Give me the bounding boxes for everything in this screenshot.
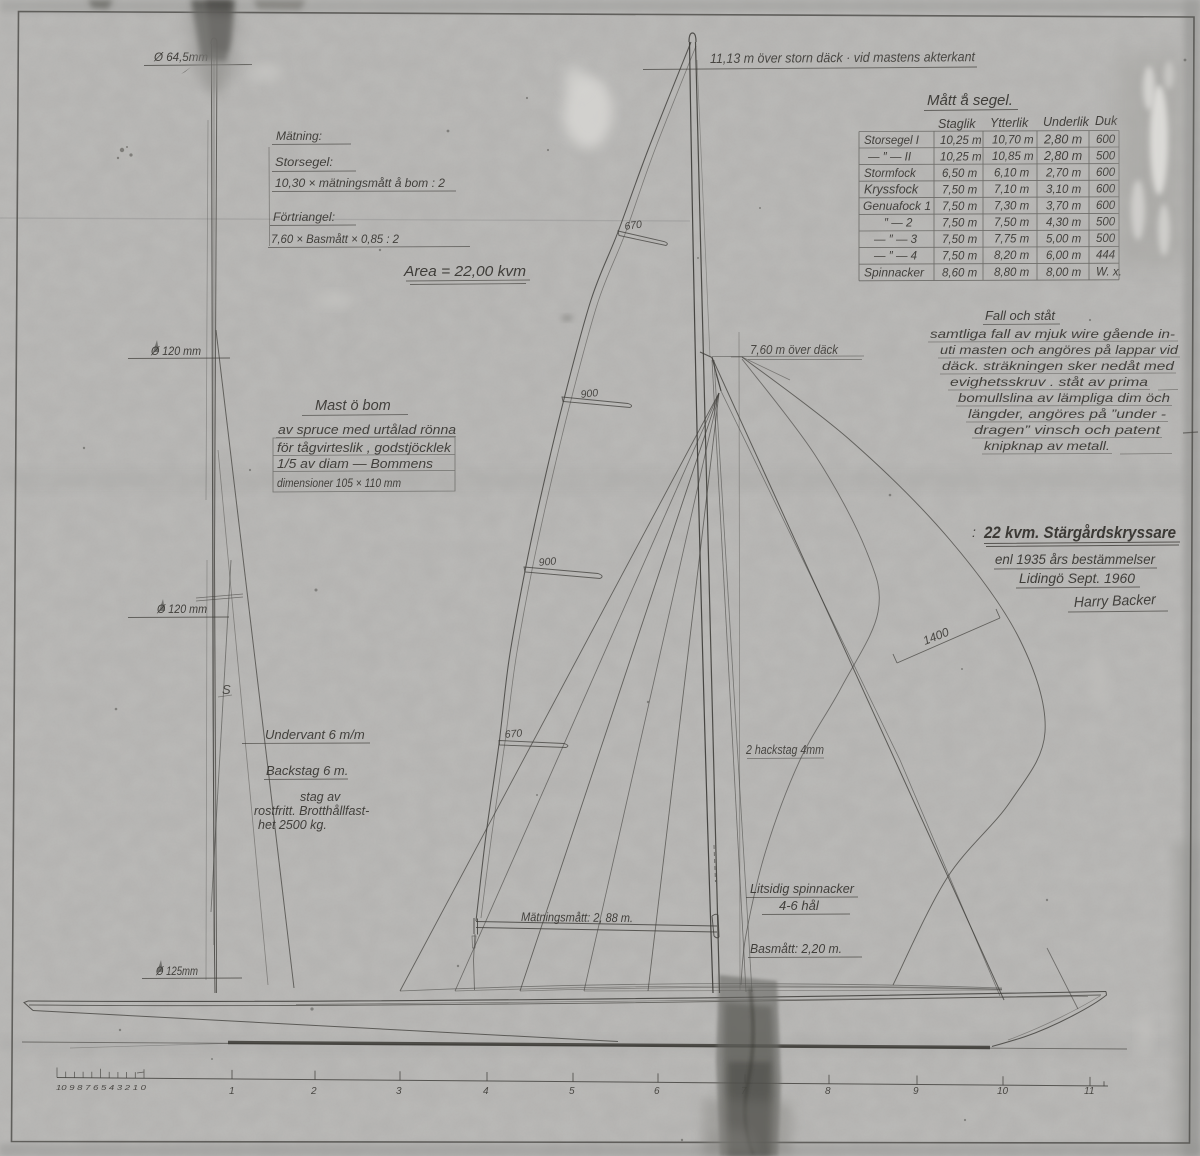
- svg-text:1: 1: [229, 1086, 235, 1097]
- svg-text:10,30 × mätningsmått å bom : 2: 10,30 × mätningsmått å bom : 2: [275, 176, 445, 190]
- svg-text:600: 600: [1096, 184, 1116, 196]
- svg-text:enl 1935 års bestämmelser: enl 1935 års bestämmelser: [995, 551, 1156, 567]
- svg-text:dragen” vinsch och patent: dragen” vinsch och patent: [974, 423, 1161, 437]
- svg-text:2,70 m: 2,70 m: [1045, 168, 1082, 180]
- svg-text:Backstag 6 m.: Backstag 6 m.: [266, 763, 348, 778]
- svg-text:rostfritt. Brotthållfast-: rostfritt. Brotthållfast-: [254, 804, 369, 818]
- svg-text:10,25 m: 10,25 m: [940, 135, 982, 147]
- svg-text:10,25 m: 10,25 m: [940, 152, 982, 164]
- svg-text:Litsidig spinnacker: Litsidig spinnacker: [750, 881, 855, 896]
- svg-text:″ — 2: ″ — 2: [884, 218, 913, 230]
- svg-text:7,60 × Basmått × 0,85 : 2: 7,60 × Basmått × 0,85 : 2: [271, 232, 399, 246]
- svg-text:för tågvirteslik , godstjöckle: för tågvirteslik , godstjöcklek: [277, 440, 453, 455]
- svg-text:Fall och ståt: Fall och ståt: [985, 308, 1056, 323]
- svg-text:670: 670: [624, 218, 643, 232]
- svg-text:Basmått: 2,20 m.: Basmått: 2,20 m.: [750, 941, 842, 956]
- svg-text:10 9 8 7 6 5 4 3 2 1 0: 10 9 8 7 6 5 4 3 2 1 0: [56, 1083, 147, 1092]
- svg-text:Underlik: Underlik: [1043, 115, 1090, 129]
- svg-text:Mätning:: Mätning:: [276, 129, 322, 143]
- svg-text:5: 5: [569, 1086, 575, 1097]
- svg-text:knipknap av metall.: knipknap av metall.: [984, 439, 1110, 453]
- svg-text:Spinnacker: Spinnacker: [864, 266, 925, 280]
- svg-text:670: 670: [504, 727, 523, 740]
- svg-text:11: 11: [1084, 1086, 1094, 1097]
- svg-text:Förtriangel:: Förtriangel:: [273, 210, 335, 224]
- svg-text:4,30 m: 4,30 m: [1046, 217, 1082, 229]
- svg-text:10,85 m: 10,85 m: [992, 151, 1034, 163]
- svg-text:2,80 m: 2,80 m: [1043, 133, 1082, 147]
- svg-text:900: 900: [580, 387, 599, 401]
- svg-text:600: 600: [1096, 134, 1116, 146]
- svg-text:8,00 m: 8,00 m: [1046, 267, 1082, 279]
- svg-text:Undervant 6 m/m: Undervant 6 m/m: [265, 727, 365, 742]
- svg-text:Harry Backer: Harry Backer: [1074, 592, 1158, 611]
- svg-text:stag av: stag av: [300, 790, 341, 804]
- svg-text:1/5 av diam — Bommens: 1/5 av diam — Bommens: [277, 456, 434, 471]
- svg-text:Staglik: Staglik: [938, 117, 976, 131]
- svg-text:10: 10: [997, 1086, 1009, 1097]
- svg-text:7,60 m över däck: 7,60 m över däck: [750, 342, 839, 357]
- svg-text:600: 600: [1096, 167, 1116, 179]
- svg-text:9: 9: [913, 1086, 919, 1097]
- svg-text:5,00 m: 5,00 m: [1046, 234, 1082, 246]
- svg-text:uti masten och angöres på lapp: uti masten och angöres på lappar vid: [940, 343, 1178, 357]
- svg-text:3,10 m: 3,10 m: [1046, 184, 1082, 196]
- svg-text:6,00 m: 6,00 m: [1046, 250, 1082, 262]
- svg-text:500: 500: [1096, 233, 1116, 245]
- svg-text:Storsegel I: Storsegel I: [864, 135, 920, 147]
- svg-text:6,10 m: 6,10 m: [994, 168, 1030, 180]
- svg-text:evighetsskruv . ståt av pri: evighetsskruv . ståt av prima: [950, 375, 1148, 389]
- svg-text:Mast ö bom: Mast ö bom: [315, 398, 391, 414]
- svg-text:22 kvm. Stärgårdskryssare: 22 kvm. Stärgårdskryssare: [983, 523, 1176, 542]
- svg-text:— ″ — 3: — ″ — 3: [873, 234, 918, 246]
- svg-text:7,50 m: 7,50 m: [942, 218, 978, 230]
- svg-text:6,50 m: 6,50 m: [942, 168, 978, 180]
- svg-text:7,10 m: 7,10 m: [994, 184, 1030, 196]
- svg-text:3,70 m: 3,70 m: [1046, 201, 1082, 213]
- svg-text:7,30 m: 7,30 m: [994, 201, 1030, 213]
- svg-text:Duk: Duk: [1095, 114, 1118, 128]
- svg-text:7,50 m: 7,50 m: [942, 201, 978, 213]
- svg-text:— ″ — 4: — ″ — 4: [873, 251, 917, 263]
- svg-text:Kryssfock: Kryssfock: [864, 183, 919, 197]
- svg-text:4: 4: [483, 1086, 489, 1097]
- svg-text:2,80 m: 2,80 m: [1043, 149, 1082, 163]
- svg-text:längder, angöres på ”under -: längder, angöres på ”under -: [968, 407, 1166, 421]
- svg-text:Mått å segel.: Mått å segel.: [927, 92, 1013, 109]
- svg-text:8: 8: [825, 1086, 831, 1097]
- svg-text:het 2500 kg.: het 2500 kg.: [258, 818, 327, 832]
- svg-text:600: 600: [1096, 200, 1116, 212]
- svg-text:Lidingö Sept. 1960: Lidingö Sept. 1960: [1019, 570, 1135, 586]
- svg-text:2 hackstag 4mm: 2 hackstag 4mm: [745, 743, 824, 757]
- svg-text:samtliga fall av mjuk wire gå: samtliga fall av mjuk wire gående in-: [930, 327, 1175, 341]
- svg-text:11,13 m över storn däck · vid: 11,13 m över storn däck · vid mastens ak…: [710, 49, 976, 66]
- svg-text:8,80 m: 8,80 m: [994, 267, 1030, 279]
- svg-text:Storsegel:: Storsegel:: [275, 155, 333, 169]
- svg-text:Ytterlik: Ytterlik: [990, 116, 1029, 130]
- svg-text:bomullslina av lämpliga dim ö: bomullslina av lämpliga dim öch: [958, 391, 1170, 405]
- svg-text:500: 500: [1096, 217, 1116, 229]
- svg-text:dimensioner 105 × 110 mm: dimensioner 105 × 110 mm: [277, 476, 401, 490]
- svg-text:av spruce med urtålad rönna: av spruce med urtålad rönna: [278, 422, 456, 437]
- svg-text:8,60 m: 8,60 m: [942, 268, 978, 280]
- svg-text:10,70 m: 10,70 m: [992, 135, 1034, 147]
- svg-text:— ″ — II: — ″ — II: [867, 152, 912, 164]
- svg-text:7,50 m: 7,50 m: [942, 234, 978, 246]
- svg-text:500: 500: [1096, 151, 1116, 163]
- svg-text:4-6 hål: 4-6 hål: [779, 898, 820, 913]
- svg-text:3: 3: [396, 1086, 402, 1097]
- svg-text:444: 444: [1096, 250, 1115, 262]
- svg-text:900: 900: [538, 555, 557, 568]
- svg-text:7,50 m: 7,50 m: [942, 185, 978, 197]
- svg-text:7,75 m: 7,75 m: [994, 234, 1030, 246]
- svg-text:2: 2: [310, 1086, 317, 1097]
- svg-text:S: S: [222, 682, 231, 697]
- svg-text:Stormfock: Stormfock: [864, 168, 917, 180]
- svg-text:däck. sträkningen sker nedåt: däck. sträkningen sker nedåt med: [942, 359, 1174, 373]
- svg-text:W. x.: W. x.: [1096, 267, 1122, 279]
- svg-text:Genuafock 1: Genuafock 1: [863, 199, 931, 213]
- svg-text:6: 6: [654, 1086, 660, 1097]
- svg-text:Mätningsmått: 2, 88 m.: Mätningsmått: 2, 88 m.: [521, 910, 633, 925]
- svg-text:7,50 m: 7,50 m: [942, 251, 978, 263]
- svg-text:Area = 22,00 kvm: Area = 22,00 kvm: [403, 263, 526, 280]
- svg-text:8,20 m: 8,20 m: [994, 250, 1030, 262]
- svg-text::: :: [972, 524, 976, 540]
- svg-text:7,50 m: 7,50 m: [994, 217, 1030, 229]
